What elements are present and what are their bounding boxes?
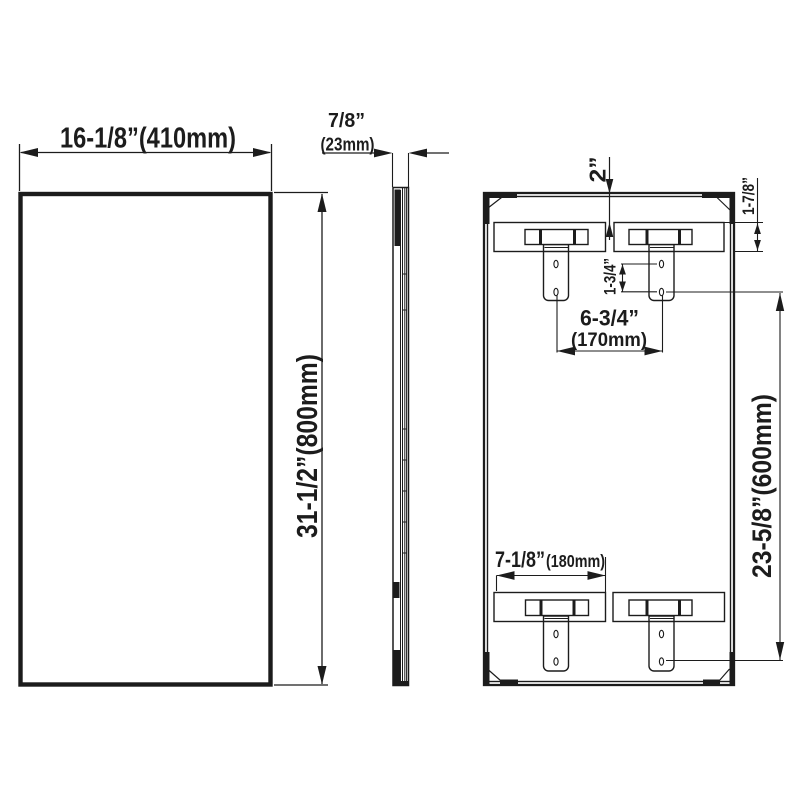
svg-text:6-3/4”: 6-3/4”: [580, 306, 639, 331]
svg-text:7/8”: 7/8”: [328, 110, 365, 132]
svg-text:1-7/8”: 1-7/8”: [739, 177, 758, 215]
svg-text:31-1/2”(800mm): 31-1/2”(800mm): [292, 354, 324, 538]
svg-text:(180mm): (180mm): [546, 551, 605, 571]
svg-text:23-5/8”(600mm): 23-5/8”(600mm): [747, 394, 777, 578]
svg-text:(170mm): (170mm): [571, 330, 647, 351]
svg-text:1-3/4”: 1-3/4”: [601, 258, 620, 295]
svg-text:2”: 2”: [585, 157, 611, 183]
svg-text:16-1/8”(410mm): 16-1/8”(410mm): [60, 123, 236, 155]
svg-text:(23mm): (23mm): [321, 135, 375, 155]
svg-text:7-1/8”: 7-1/8”: [495, 547, 545, 572]
